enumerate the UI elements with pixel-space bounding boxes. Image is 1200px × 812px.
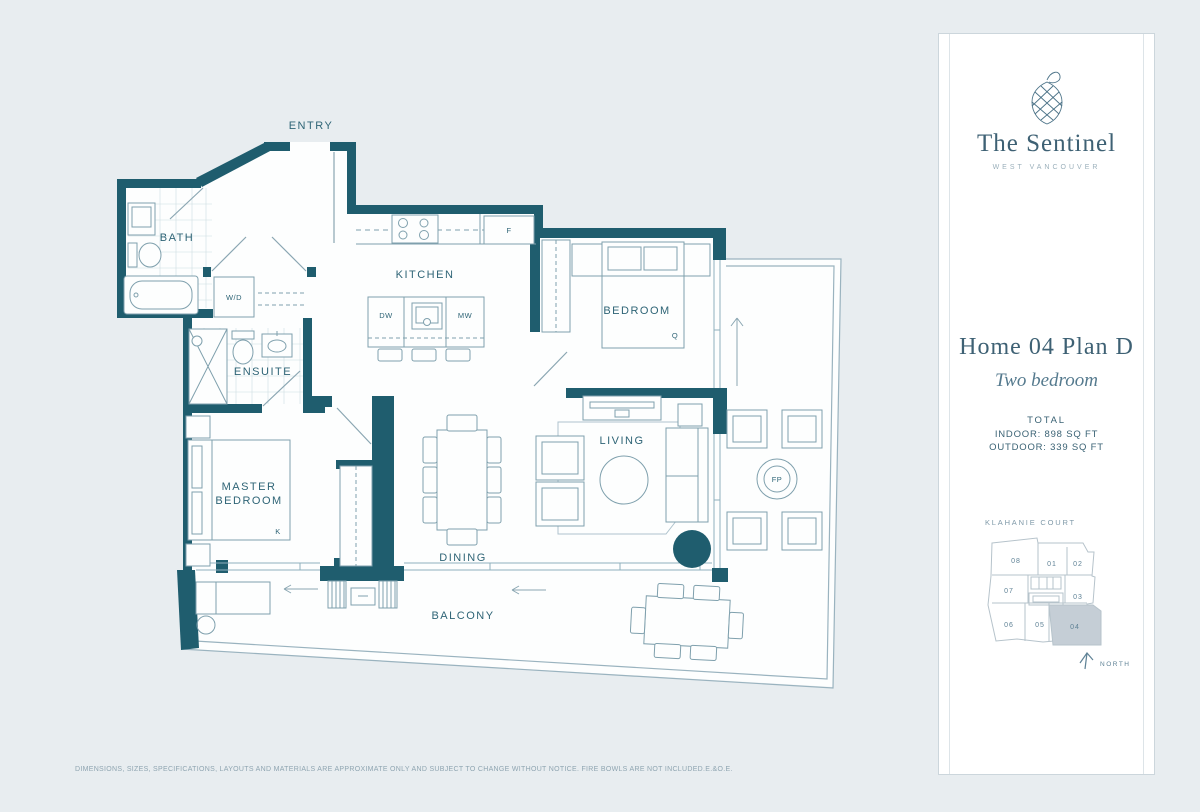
unit-07: 07 xyxy=(1004,588,1014,595)
unit-03: 03 xyxy=(1073,594,1083,601)
unit-02: 02 xyxy=(1073,561,1083,568)
microwave-label: MW xyxy=(458,311,473,320)
dishwasher-label: DW xyxy=(379,311,393,320)
king-bed-label: K xyxy=(275,527,281,536)
pinecone-logo-icon xyxy=(939,66,1156,136)
indoor-area: INDOOR: 898 SQ FT xyxy=(939,428,1154,442)
north-arrow-icon xyxy=(1080,653,1093,669)
outdoor-area: OUTDOOR: 339 SQ FT xyxy=(939,441,1154,455)
unit-04: 04 xyxy=(1070,624,1080,631)
wd-label: W/D xyxy=(226,293,242,302)
fridge-label: F xyxy=(506,226,511,235)
unit-08: 08 xyxy=(1011,558,1021,565)
entry-label: ENTRY xyxy=(289,120,334,132)
area-summary: TOTAL INDOOR: 898 SQ FT OUTDOOR: 339 SQ … xyxy=(939,414,1154,455)
plan-type: Two bedroom xyxy=(939,370,1154,392)
firepit-label: FP xyxy=(772,475,783,484)
unit-05: 05 xyxy=(1035,622,1045,629)
plan-name: Home 04 Plan D xyxy=(939,334,1154,361)
brand-title: The Sentinel xyxy=(939,130,1154,158)
kitchen-label: KITCHEN xyxy=(396,269,455,281)
disclaimer-text: DIMENSIONS, SIZES, SPECIFICATIONS, LAYOU… xyxy=(75,766,733,773)
keyplan: KLAHANIE COURT 08 01 02 07 03 06 05 04 N… xyxy=(942,511,1153,681)
bath-label: BATH xyxy=(160,232,195,244)
queen-bed-label: Q xyxy=(672,331,678,340)
balcony-label: BALCONY xyxy=(431,610,494,622)
fire-bowl xyxy=(673,530,711,568)
north-label: NORTH xyxy=(1100,661,1131,668)
ensuite-label: ENSUITE xyxy=(234,366,292,378)
dining-label: DINING xyxy=(439,552,487,564)
floorplan-page: ENTRY BATH KITCHEN BEDROOM W/D ENSUITE M… xyxy=(0,0,1200,812)
keyplan-title: KLAHANIE COURT xyxy=(985,518,1076,527)
info-panel: The Sentinel WEST VANCOUVER Home 04 Plan… xyxy=(938,33,1155,775)
living-label: LIVING xyxy=(599,435,644,447)
unit-06: 06 xyxy=(1004,622,1014,629)
bedroom-label: BEDROOM xyxy=(603,305,670,317)
master-label-line2: BEDROOM xyxy=(215,495,282,507)
total-label: TOTAL xyxy=(939,414,1154,428)
unit-01: 01 xyxy=(1047,561,1057,568)
brand-location: WEST VANCOUVER xyxy=(939,164,1154,171)
master-label-line1: MASTER xyxy=(222,481,277,493)
